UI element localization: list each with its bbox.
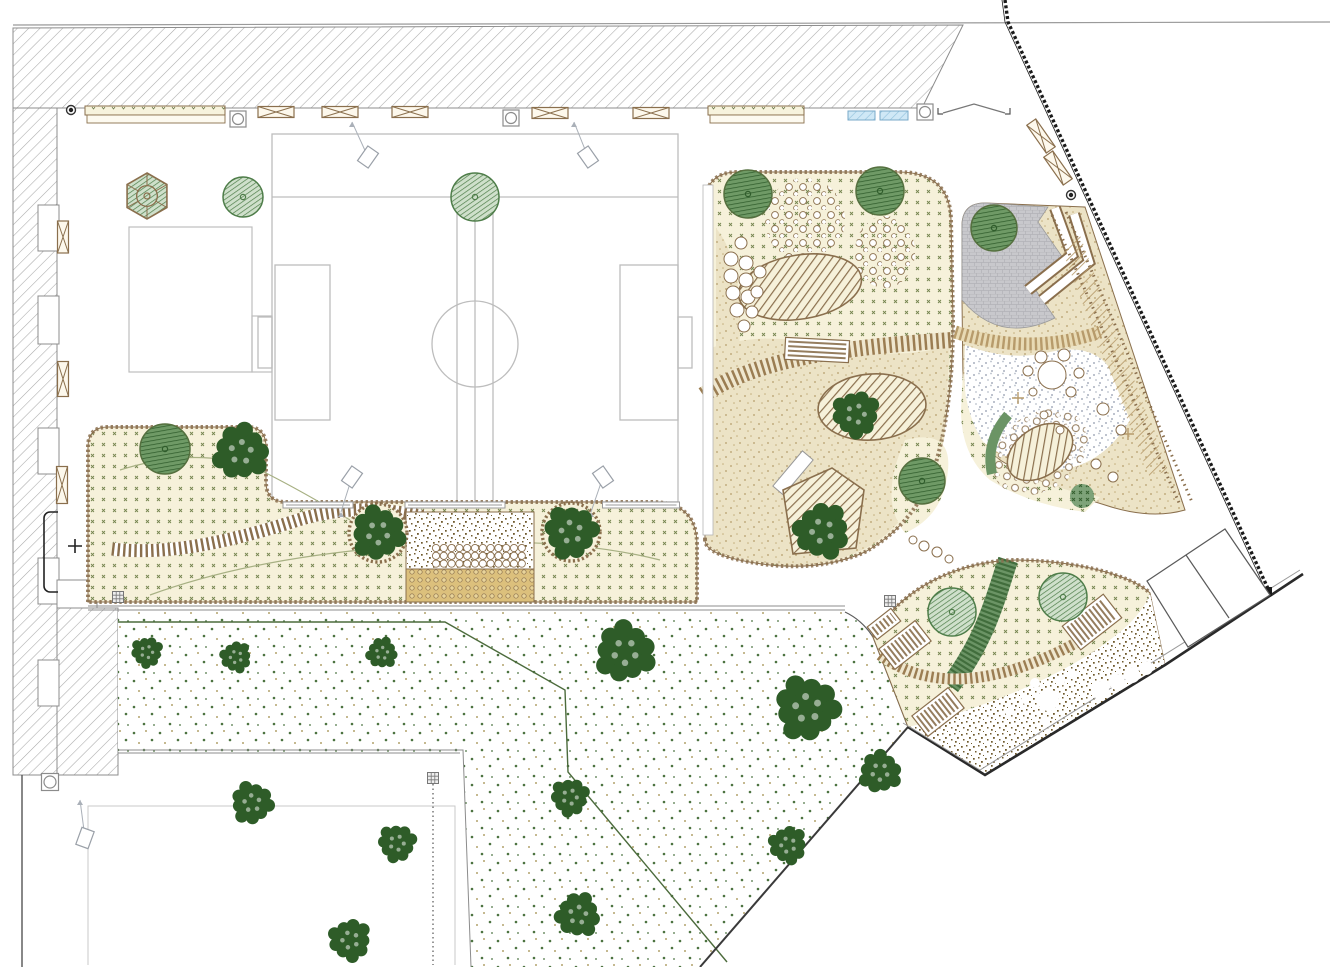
play-south	[873, 560, 1165, 775]
cobble-terrace	[406, 569, 534, 602]
lawn-top-edge	[88, 606, 845, 610]
court-rect	[129, 227, 252, 372]
practice-court	[129, 227, 272, 372]
green-patch	[1070, 484, 1094, 508]
plaza-edge	[118, 750, 471, 967]
speed-hump-marker	[943, 104, 1005, 113]
building-southwest	[57, 608, 118, 775]
lawn	[88, 606, 908, 967]
pebble-zone	[765, 178, 845, 262]
site-boundary	[13, 22, 1330, 25]
pebble-zone	[855, 216, 915, 288]
site-plan	[0, 0, 1330, 967]
north-boundary-line	[13, 22, 1330, 25]
court-annex	[252, 316, 272, 372]
building-north	[13, 25, 963, 108]
site-plan-drawing	[0, 0, 1330, 967]
edge-path	[703, 185, 713, 535]
